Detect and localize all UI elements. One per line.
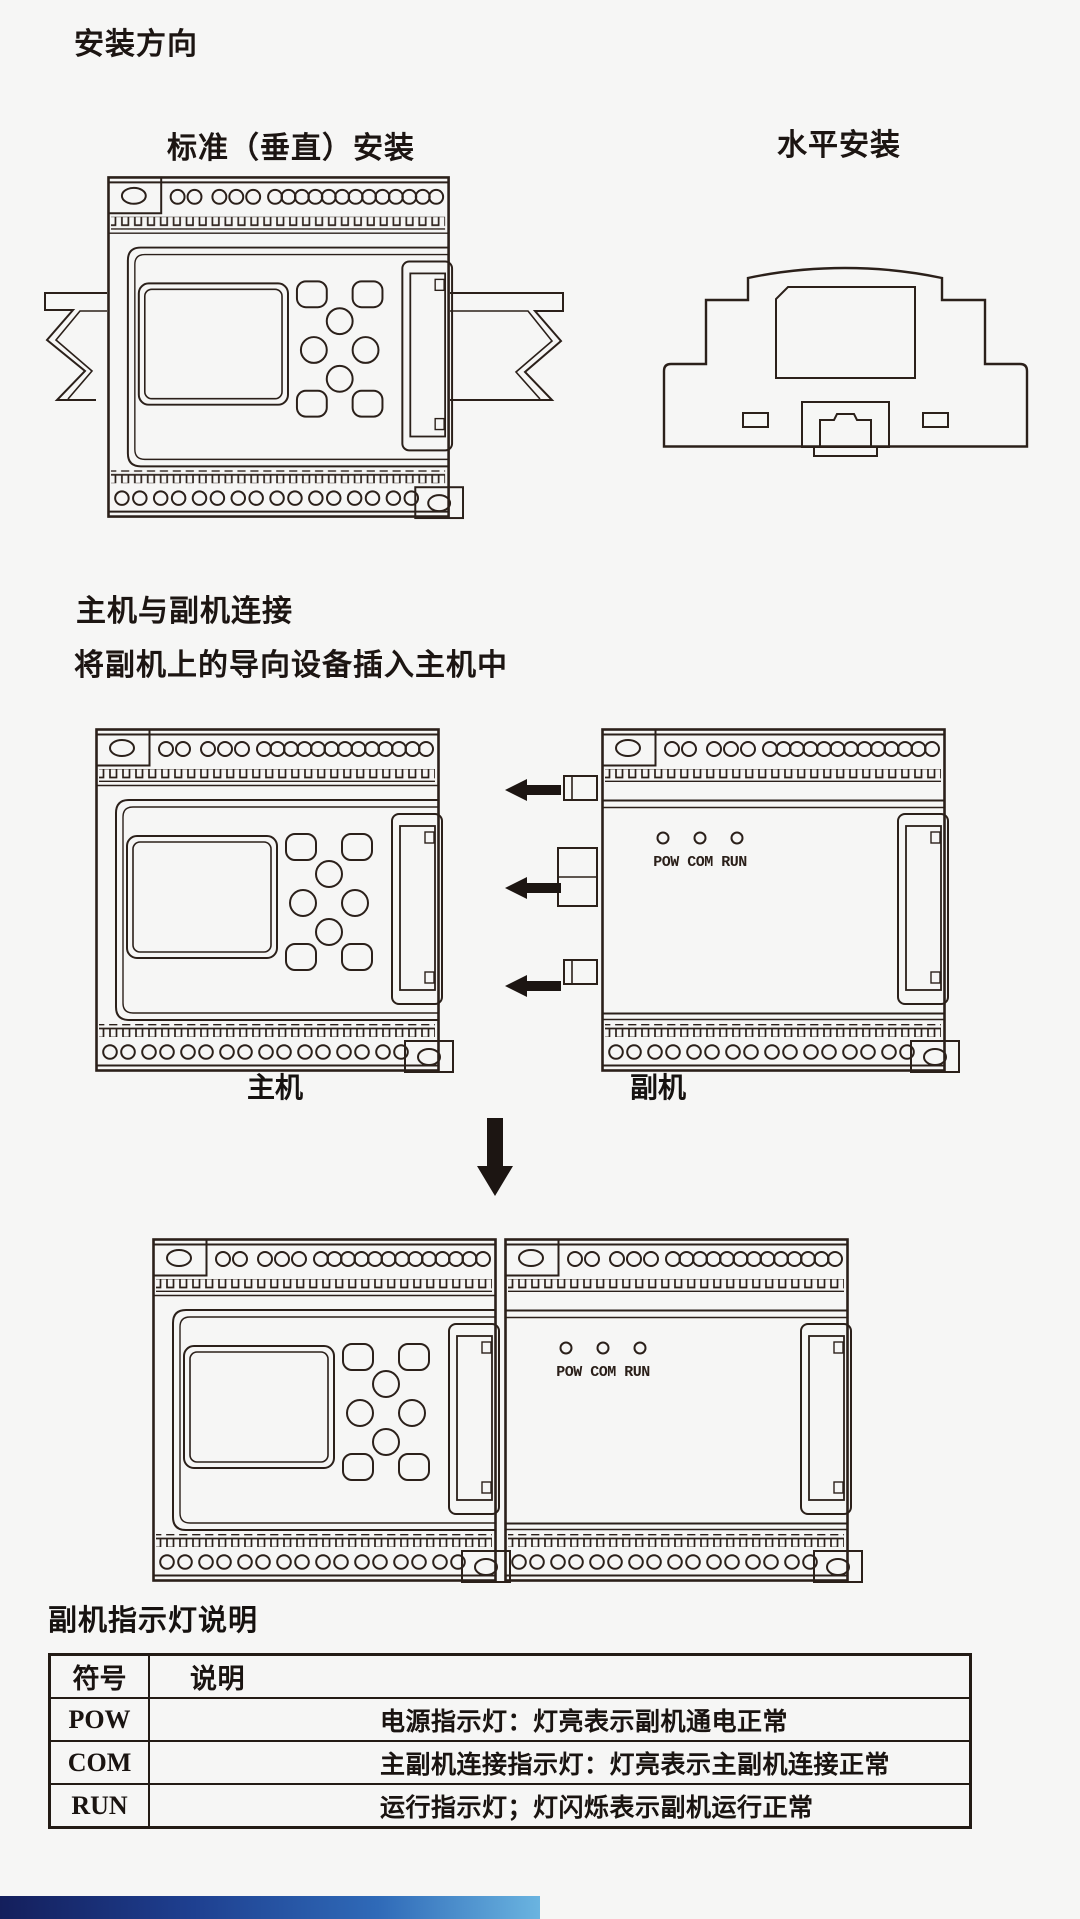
arrow-left-icon [505, 779, 561, 801]
din-clip-housing [802, 402, 889, 447]
master-unit-connected [154, 1240, 511, 1583]
label-vertical-mounting: 标准（垂直）安装 [167, 123, 415, 167]
label-horizontal-mounting: 水平安装 [777, 120, 901, 164]
guide-plugs [558, 776, 597, 984]
cell-description: 电源指示灯：灯亮表示副机通电正常 [149, 1698, 971, 1741]
header-description: 说明 [149, 1655, 971, 1699]
table-row: COM 主副机连接指示灯：灯亮表示主副机连接正常 [50, 1741, 971, 1784]
arrow-down-icon [477, 1118, 513, 1196]
plc-side-profile [664, 268, 1027, 447]
diagram-connection [97, 730, 960, 1073]
diagram-horizontal-mounting [664, 268, 1027, 456]
master-unit [97, 730, 454, 1073]
cell-description: 运行指示灯；灯闪烁表示副机运行正常 [149, 1784, 971, 1828]
indicator-table: 符号 说明 POW 电源指示灯：灯亮表示副机通电正常 COM 主副机连接指示灯：… [48, 1653, 972, 1829]
insertion-arrows [505, 779, 561, 997]
plc-front-view [108, 177, 463, 518]
header-symbol: 符号 [50, 1655, 150, 1699]
table-row: POW 电源指示灯：灯亮表示副机通电正常 [50, 1698, 971, 1741]
connection-subheading: 将副机上的导向设备插入主机中 [74, 640, 508, 684]
diagram-vertical-mounting [45, 177, 563, 518]
arrow-left-icon [505, 975, 561, 997]
diagram-connected [154, 1240, 863, 1583]
footer-accent-bar [0, 1896, 540, 1919]
connection-heading: 主机与副机连接 [76, 586, 293, 630]
manual-page: POW COM RUN [0, 0, 1080, 1919]
cell-symbol: RUN [50, 1784, 150, 1828]
table-row: RUN 运行指示灯；灯闪烁表示副机运行正常 [50, 1784, 971, 1828]
master-label: 主机 [215, 1066, 335, 1106]
din-clip [814, 414, 877, 456]
slave-label: 副机 [598, 1066, 718, 1106]
arrow-left-icon [505, 877, 561, 899]
cell-symbol: COM [50, 1741, 150, 1784]
cell-symbol: POW [50, 1698, 150, 1741]
cell-description: 主副机连接指示灯：灯亮表示主副机连接正常 [149, 1741, 971, 1784]
slave-unit-connected [506, 1240, 863, 1583]
side-display-window [776, 287, 915, 378]
din-rail-left [45, 293, 107, 400]
indicator-table-title: 副机指示灯说明 [48, 1597, 258, 1639]
page-title: 安装方向 [74, 19, 198, 63]
slave-unit [603, 730, 960, 1073]
table-header-row: 符号 说明 [50, 1655, 971, 1699]
